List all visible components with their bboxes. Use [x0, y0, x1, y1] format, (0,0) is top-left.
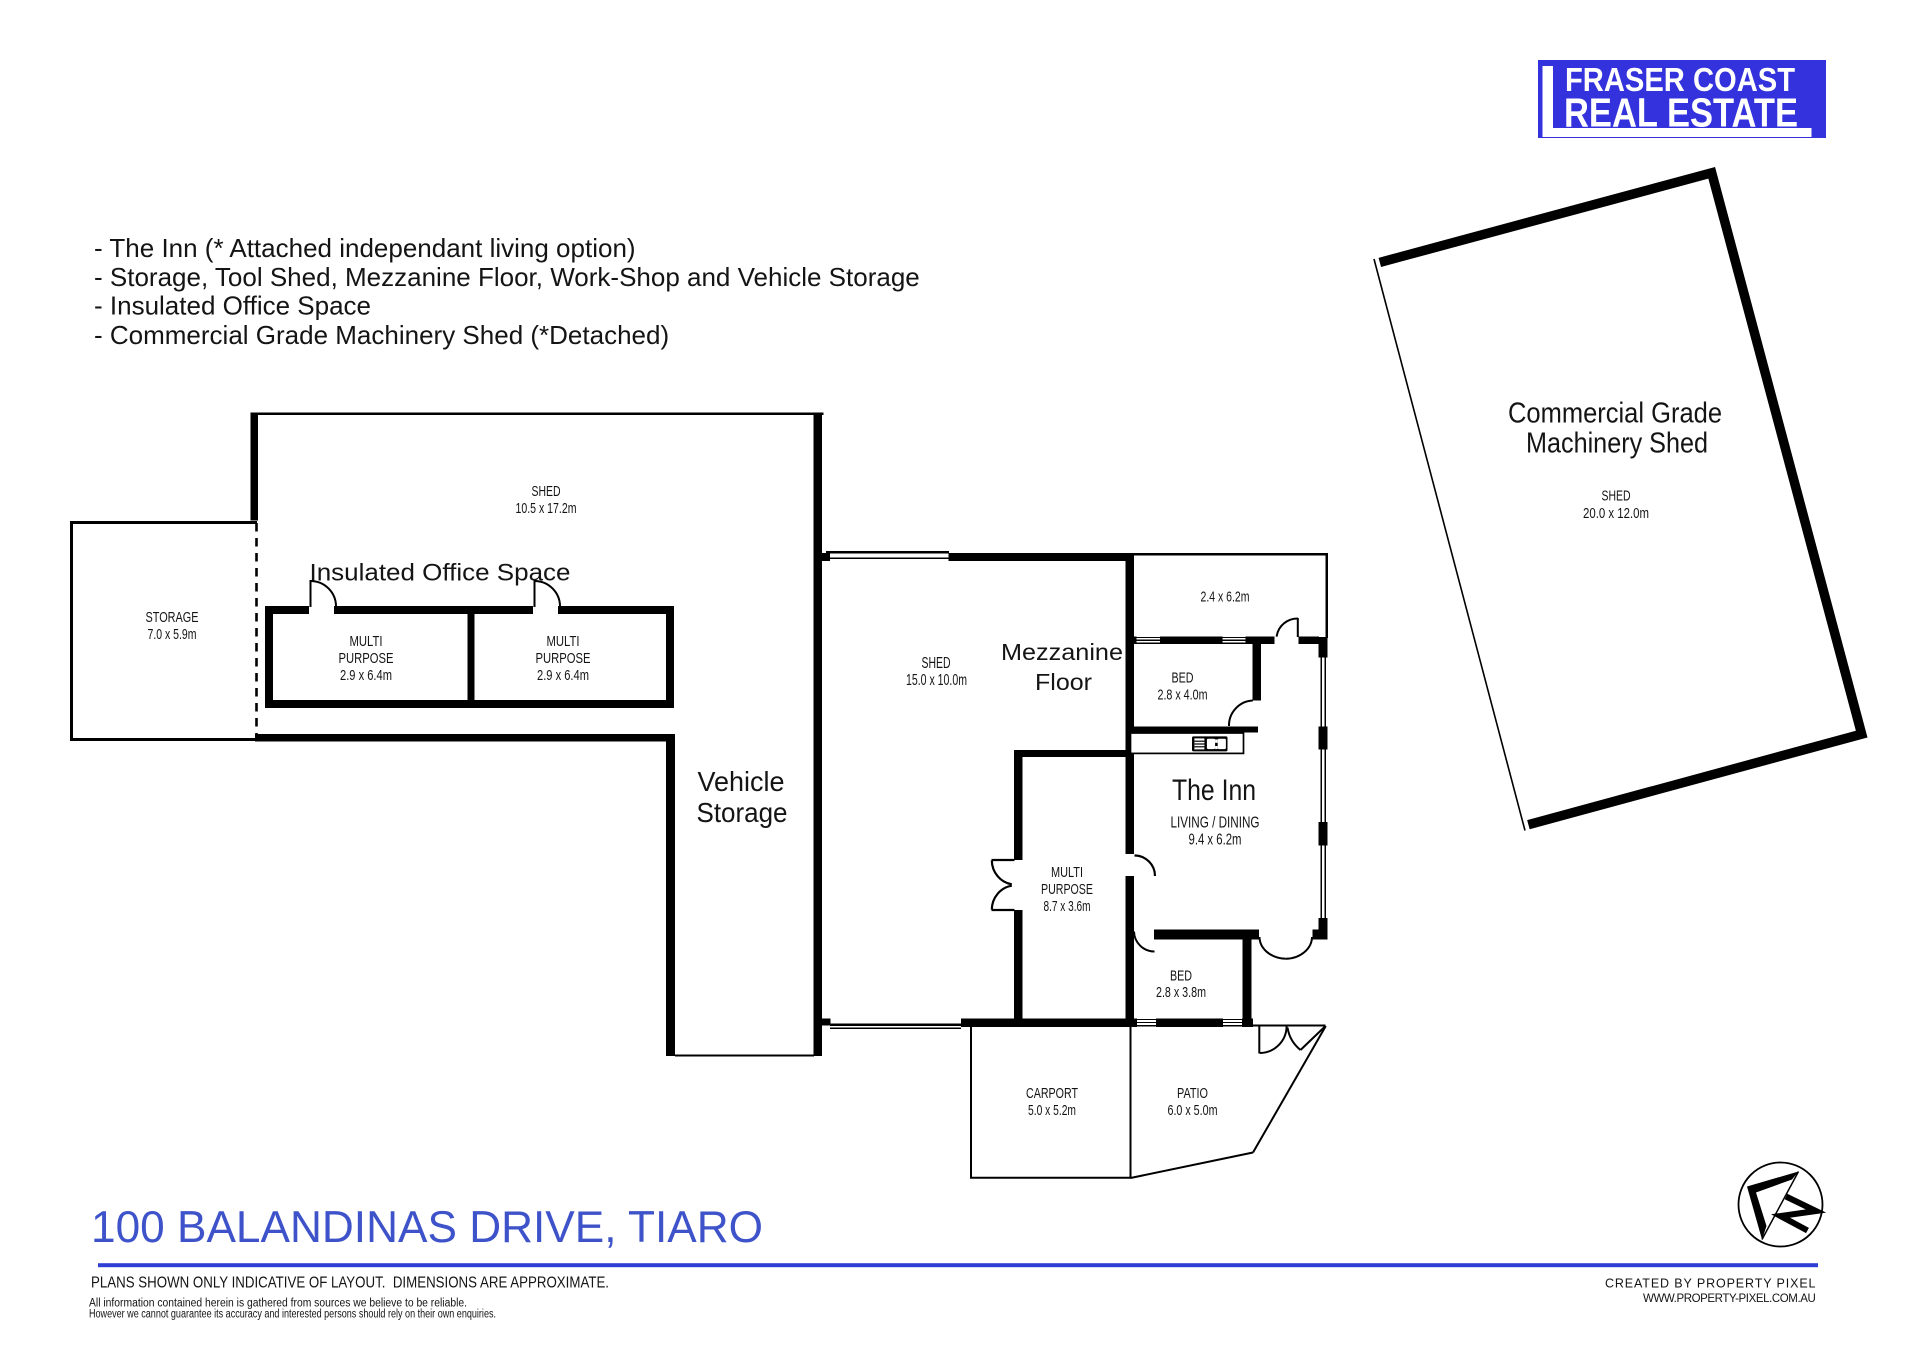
svg-text:PURPOSE: PURPOSE	[536, 650, 591, 667]
svg-text:MULTI: MULTI	[1051, 864, 1083, 881]
svg-text:2.9 x 6.4m: 2.9 x 6.4m	[537, 667, 589, 684]
svg-text:STORAGE: STORAGE	[146, 609, 199, 626]
svg-text:- Storage, Tool Shed, Mezzanin: - Storage, Tool Shed, Mezzanine Floor, W…	[94, 262, 920, 292]
svg-text:BED: BED	[1172, 670, 1194, 687]
svg-text:MULTI: MULTI	[547, 633, 580, 650]
svg-text:PURPOSE: PURPOSE	[1041, 881, 1093, 898]
svg-text:- Commercial Grade Machinery S: - Commercial Grade Machinery Shed (*Deta…	[94, 320, 669, 350]
svg-text:2.8 x 4.0m: 2.8 x 4.0m	[1158, 687, 1208, 704]
svg-text:Commercial Grade: Commercial Grade	[1508, 398, 1722, 430]
svg-text:CARPORT: CARPORT	[1026, 1085, 1078, 1102]
svg-text:15.0 x 10.0m: 15.0 x 10.0m	[906, 672, 967, 689]
svg-text:7.0 x 5.9m: 7.0 x 5.9m	[148, 626, 197, 643]
svg-text:Floor: Floor	[1035, 669, 1092, 695]
svg-text:PLANS SHOWN ONLY INDICATIVE OF: PLANS SHOWN ONLY INDICATIVE OF LAYOUT. D…	[91, 1275, 609, 1292]
svg-text:PATIO: PATIO	[1177, 1085, 1208, 1102]
svg-text:9.4 x 6.2m: 9.4 x 6.2m	[1189, 832, 1242, 849]
svg-text:Vehicle: Vehicle	[698, 766, 785, 797]
svg-text:REAL ESTATE: REAL ESTATE	[1564, 90, 1798, 136]
svg-text:20.0 x 12.0m: 20.0 x 12.0m	[1583, 506, 1649, 522]
svg-text:The Inn: The Inn	[1172, 774, 1256, 807]
svg-text:- Insulated Office Space: - Insulated Office Space	[94, 291, 371, 321]
svg-text:MULTI: MULTI	[350, 633, 383, 650]
svg-text:LIVING / DINING: LIVING / DINING	[1171, 815, 1260, 832]
svg-text:WWW.PROPERTY-PIXEL.COM.AU: WWW.PROPERTY-PIXEL.COM.AU	[1643, 1293, 1817, 1305]
svg-text:2.8 x 3.8m: 2.8 x 3.8m	[1156, 984, 1206, 1001]
svg-text:Mezzanine: Mezzanine	[1001, 639, 1123, 665]
svg-text:100 BALANDINAS DRIVE, TIARO: 100 BALANDINAS DRIVE, TIARO	[91, 1203, 763, 1252]
svg-text:8.7 x 3.6m: 8.7 x 3.6m	[1044, 898, 1091, 915]
svg-text:Insulated Office Space: Insulated Office Space	[310, 560, 571, 587]
svg-text:2.9 x 6.4m: 2.9 x 6.4m	[340, 667, 392, 684]
svg-text:10.5 x 17.2m: 10.5 x 17.2m	[516, 500, 577, 517]
svg-text:However we cannot guarantee it: However we cannot guarantee its accuracy…	[89, 1309, 496, 1321]
svg-text:SHED: SHED	[922, 655, 951, 672]
svg-text:PURPOSE: PURPOSE	[339, 650, 394, 667]
svg-text:- The Inn (* Attached independ: - The Inn (* Attached independant living…	[94, 233, 636, 263]
svg-text:5.0 x 5.2m: 5.0 x 5.2m	[1028, 1102, 1076, 1119]
svg-text:Storage: Storage	[697, 797, 788, 828]
svg-text:BED: BED	[1170, 968, 1192, 985]
svg-text:2.4 x 6.2m: 2.4 x 6.2m	[1201, 589, 1250, 606]
svg-text:SHED: SHED	[1602, 489, 1631, 505]
svg-text:Machinery Shed: Machinery Shed	[1526, 428, 1708, 460]
svg-text:CREATED BY PROPERTY PIXEL: CREATED BY PROPERTY PIXEL	[1605, 1277, 1817, 1291]
svg-text:6.0 x 5.0m: 6.0 x 5.0m	[1168, 1102, 1218, 1119]
svg-text:SHED: SHED	[532, 483, 561, 500]
